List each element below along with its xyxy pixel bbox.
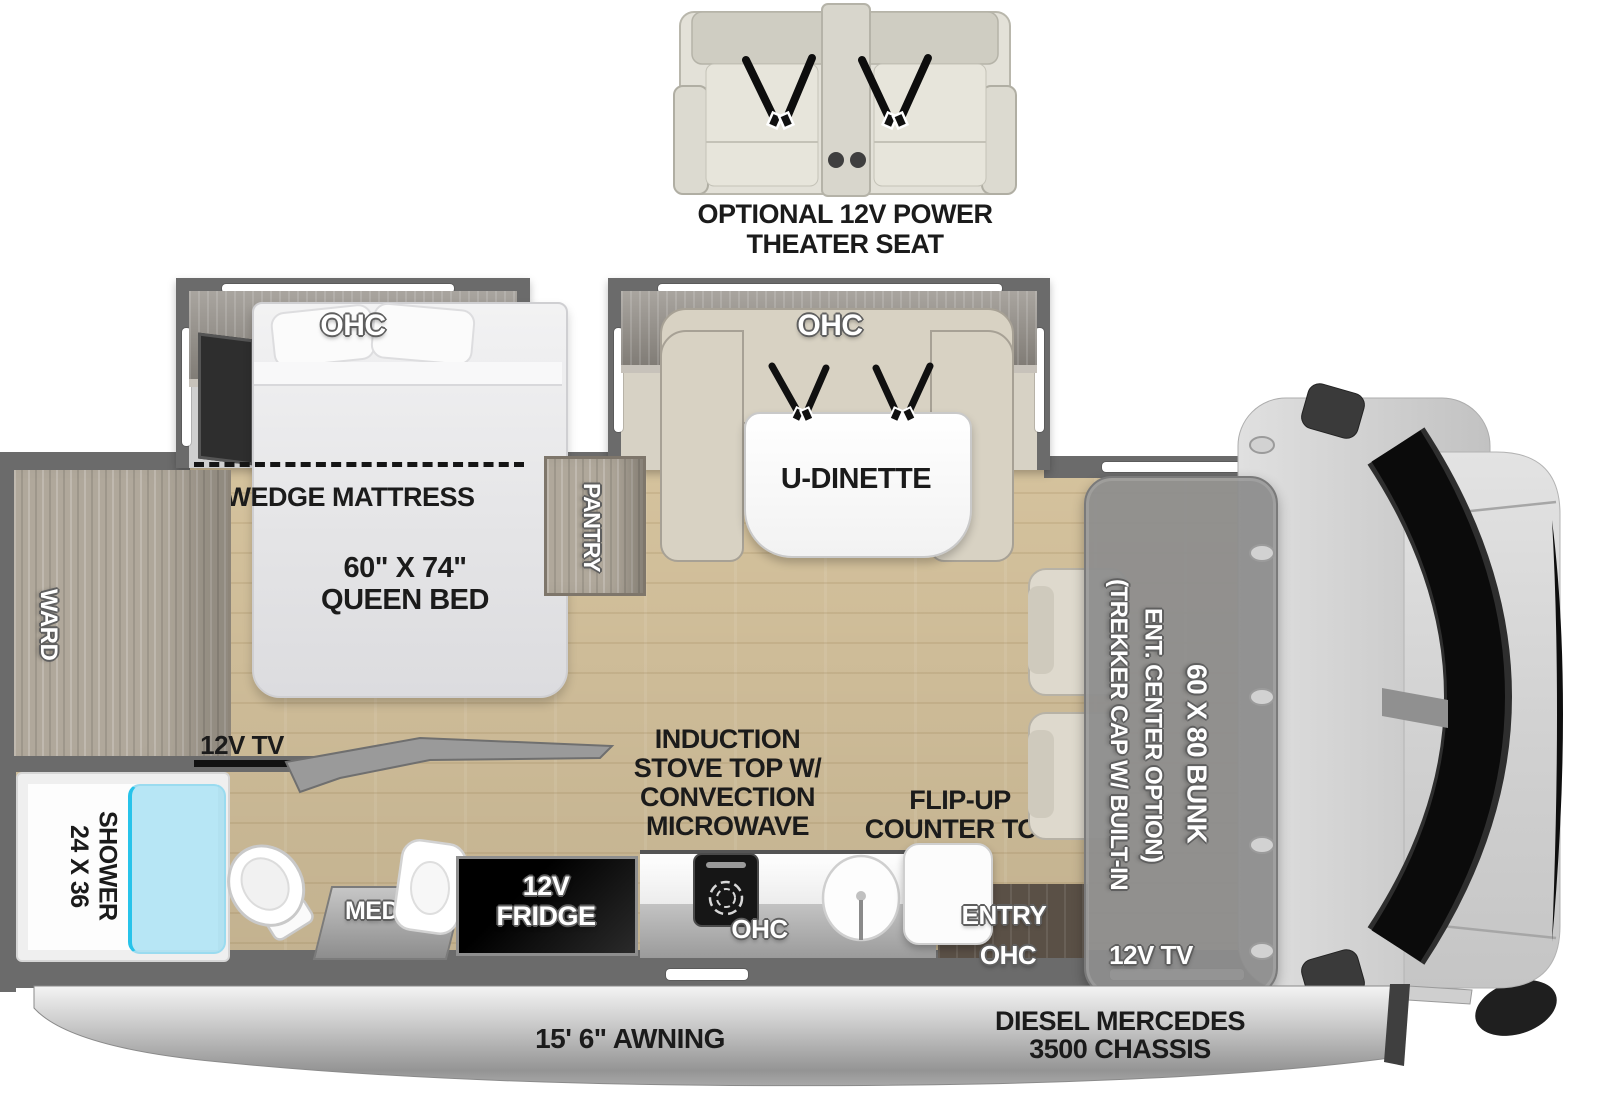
shower-label: 24 X 36 SHOWER bbox=[64, 790, 122, 942]
fridge-label-line1: 12V bbox=[466, 872, 626, 900]
cupholder-icon bbox=[828, 152, 844, 168]
theater-seat-label-line1: OPTIONAL 12V POWER bbox=[655, 200, 1035, 228]
cupholder-icon bbox=[850, 152, 866, 168]
bedroom-dark-panel-left bbox=[198, 333, 254, 466]
theater-armrest-right bbox=[982, 86, 1016, 194]
wedge-mattress-label: WEDGE MATTRESS bbox=[200, 483, 500, 511]
shower-size-line: 24 X 36 bbox=[64, 790, 93, 942]
wedge-fold-line bbox=[194, 462, 524, 467]
bunk-tv-label: 12V TV bbox=[1096, 942, 1206, 969]
counter-ohc-label: OHC bbox=[712, 916, 807, 943]
seam-rivets bbox=[1240, 420, 1290, 980]
entry-label: ENTRY bbox=[954, 902, 1054, 929]
seatbelt-icon bbox=[772, 366, 930, 414]
bedroom-tv-underline bbox=[194, 760, 291, 767]
bunk-trekker-line2: ENT. CENTER OPTION) bbox=[1135, 486, 1170, 984]
wardrobe-label: WARD bbox=[36, 575, 61, 675]
dinette-label: U-DINETTE bbox=[756, 464, 956, 494]
cab-seat-passenger-back bbox=[1028, 586, 1054, 674]
dinette-bench-left bbox=[660, 330, 744, 562]
bunk-trekker-label: (TREKKER CAP W/ BUILT-IN ENT. CENTER OPT… bbox=[1100, 486, 1170, 984]
chassis-label-line1: DIESEL MERCEDES bbox=[980, 1007, 1260, 1035]
awning-label: 15' 6" AWNING bbox=[500, 1024, 760, 1053]
stove-label-line3: CONVECTION bbox=[600, 783, 855, 811]
bunk-trekker-line1: (TREKKER CAP W/ BUILT-IN bbox=[1100, 486, 1135, 984]
shower-glass-door bbox=[128, 784, 226, 954]
dinette-ohc-label: OHC bbox=[780, 310, 880, 342]
bed-size-label: 60" X 74" bbox=[280, 553, 530, 583]
stove-label-line4: MICROWAVE bbox=[600, 812, 855, 840]
seatbelt-buckle-icon bbox=[791, 407, 915, 422]
awning-arm bbox=[1408, 986, 1472, 1004]
top-wall-left bbox=[0, 452, 190, 472]
rv-floorplan: OPTIONAL 12V POWER THEATER SEAT WEDGE MA… bbox=[0, 0, 1600, 1109]
bedroom-ohc-label: OHC bbox=[303, 310, 403, 342]
pantry-label: PANTRY bbox=[580, 466, 604, 588]
bed-sheet-fold bbox=[254, 362, 562, 386]
theater-center-console bbox=[822, 4, 870, 196]
dinette-seatbelts bbox=[760, 358, 950, 428]
theater-seat-label-line2: THEATER SEAT bbox=[655, 230, 1035, 258]
stove-label-line1: INDUCTION bbox=[600, 725, 855, 753]
bedroom-tv-label: 12V TV bbox=[192, 732, 292, 759]
chassis-label-line2: 3500 CHASSIS bbox=[980, 1035, 1260, 1063]
theater-armrest-left bbox=[674, 86, 708, 194]
theater-seat-illustration bbox=[660, 0, 1020, 210]
fridge-label-line2: FRIDGE bbox=[466, 902, 626, 930]
bunk-size-label: 60 X 80 BUNK bbox=[1182, 598, 1211, 910]
stove-label-line2: STOVE TOP W/ bbox=[600, 754, 855, 782]
entry-ohc-label: OHC bbox=[958, 942, 1058, 969]
shower-name-line: SHOWER bbox=[93, 790, 122, 942]
cab-seat-driver-back bbox=[1028, 730, 1054, 818]
bed-name-label: QUEEN BED bbox=[280, 585, 530, 615]
tv-swing-arm bbox=[282, 730, 622, 800]
kitchen-sink bbox=[818, 852, 908, 952]
